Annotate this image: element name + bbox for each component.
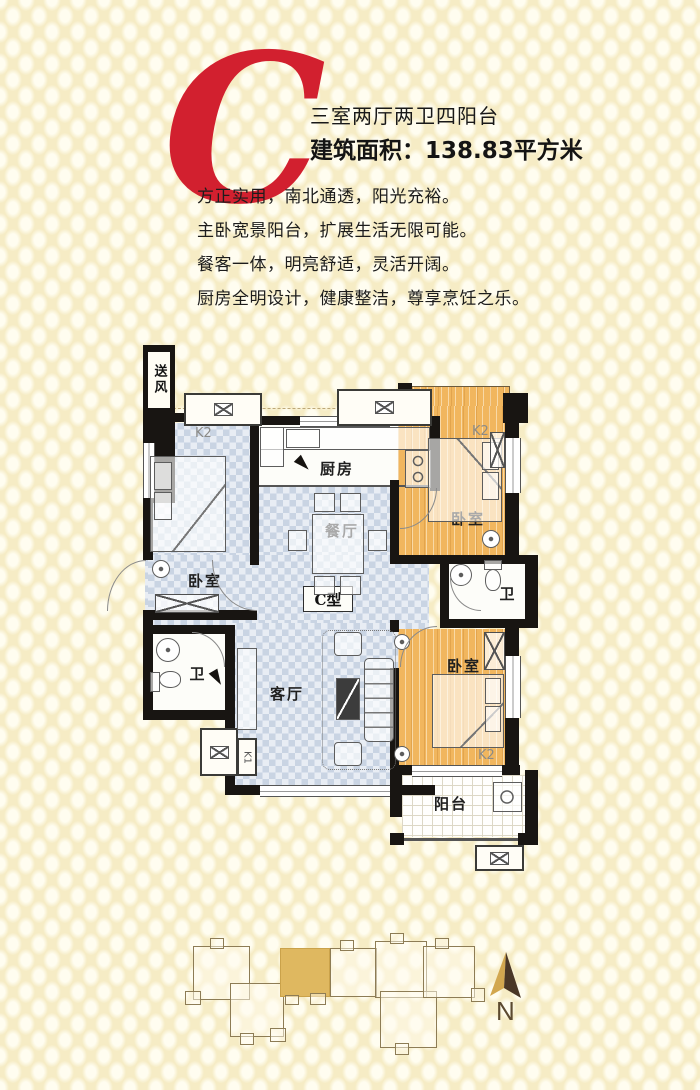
unit-area: 建筑面积：138.83平方米: [310, 131, 583, 165]
wardrobe-bottomright: [484, 632, 505, 670]
floorplan: 送风 K1 C型 卧室 厨房 餐厅 客厅: [100, 338, 555, 873]
closet-topright: [490, 432, 505, 468]
bay-balcony: [475, 845, 524, 871]
pillow: [485, 678, 501, 704]
washer: [493, 782, 522, 812]
dining-table: [312, 514, 364, 574]
toilet: [485, 569, 501, 591]
dining-chair: [314, 576, 335, 595]
dining-chair: [340, 576, 361, 595]
building-tab: [270, 1028, 286, 1042]
balcony-bottom-line: [398, 838, 528, 841]
dining-chair: [288, 530, 307, 551]
feature-line-1: 方正实用，南北通透，阳光充裕。: [197, 180, 530, 214]
k1-box: K1: [237, 738, 257, 776]
building-tab: [210, 938, 224, 949]
hall-cabinet: [237, 648, 257, 730]
tv-table: [336, 678, 360, 720]
window-bedroomBR-right: [505, 656, 521, 718]
compass-arrow-right: [504, 952, 521, 998]
building-tab: [390, 933, 404, 944]
feature-line-2: 主卧宽景阳台，扩展生活无限可能。: [197, 214, 530, 248]
sink: [156, 638, 180, 662]
kitchen-label: 厨房: [304, 458, 370, 479]
wall-balcony-left: [390, 775, 402, 817]
building-highlighted: [280, 948, 330, 997]
wardrobe-topleft: [155, 594, 219, 613]
side-table: [394, 746, 410, 762]
unit-title: 三室两厅两卫四阳台: [310, 100, 499, 129]
ac-unit-icon: [375, 401, 394, 414]
wall-bathL-top: [143, 625, 235, 634]
building-tab: [395, 1043, 409, 1055]
dining-chair: [340, 493, 361, 512]
wall-bathL-bottom: [143, 710, 235, 720]
toilet: [159, 671, 181, 688]
pillow: [482, 472, 499, 500]
ac-unit-icon: [210, 746, 229, 759]
dining-chair: [368, 530, 387, 551]
building: [375, 941, 427, 998]
building-tab: [185, 991, 201, 1005]
compass-north-label: N: [496, 996, 515, 1026]
wall-bathTR-left: [440, 555, 449, 628]
pillow: [485, 706, 501, 732]
feature-list: 方正实用，南北通透，阳光充裕。 主卧宽景阳台，扩展生活无限可能。 餐客一体，明亮…: [197, 180, 530, 316]
compass-arrow-left: [490, 952, 506, 996]
ac-unit-icon: [214, 403, 233, 416]
dining-chair: [314, 493, 335, 512]
bay-bedroomTL: [184, 393, 262, 426]
wall-topright-corner: [503, 393, 528, 423]
bay-kitchen: [337, 389, 432, 426]
bathTR-label: 卫: [498, 583, 518, 604]
pillow: [154, 492, 172, 520]
compass: N: [478, 948, 530, 1026]
fan-symbol: [482, 530, 500, 548]
fan-symbol: [152, 560, 170, 578]
balcony-corner-left: [390, 833, 404, 845]
wall-bathTR-bottom: [440, 619, 538, 628]
window-bedroomBR-bottom: [412, 765, 502, 777]
window-bedroomTR-right: [505, 438, 521, 493]
wall-bathTR-right: [525, 555, 538, 628]
wall-dining-bedroomTR: [390, 480, 399, 564]
k2-mark-BR: K2: [478, 748, 495, 763]
k2-mark-TR: K2: [472, 424, 489, 439]
building: [423, 946, 475, 998]
entry-door-arc: [107, 560, 146, 611]
air-supply-label: 送风: [148, 352, 170, 408]
bay-living-left: [200, 728, 238, 776]
balcony-corner-right: [518, 833, 532, 845]
building: [380, 991, 437, 1048]
living-label: 客厅: [254, 683, 320, 704]
feature-line-3: 餐客一体，明亮舒适，灵活开阔。: [197, 248, 530, 282]
pillow: [154, 462, 172, 490]
k2-mark-TL: K2: [195, 426, 212, 441]
balcony-label: 阳台: [418, 793, 484, 814]
ac-unit-icon: [490, 852, 509, 865]
building-tab: [285, 995, 299, 1005]
sofa-main: [364, 658, 394, 742]
kitchen-sink: [286, 429, 320, 448]
kitchen-cabinet: [260, 427, 284, 467]
floorplan-poster: { "header": { "unit_letter": "C", "unit_…: [0, 0, 700, 1090]
site-plan: [185, 933, 485, 1058]
building-tab: [310, 993, 326, 1005]
building-tab: [240, 1033, 254, 1045]
building-tab: [435, 938, 449, 949]
window-living-bottom: [260, 785, 390, 797]
building: [330, 948, 377, 997]
armchair: [334, 632, 362, 656]
feature-line-4: 厨房全明设计，健康整洁，尊享烹饪之乐。: [197, 282, 530, 316]
building-tab: [340, 940, 354, 951]
armchair: [334, 742, 362, 766]
